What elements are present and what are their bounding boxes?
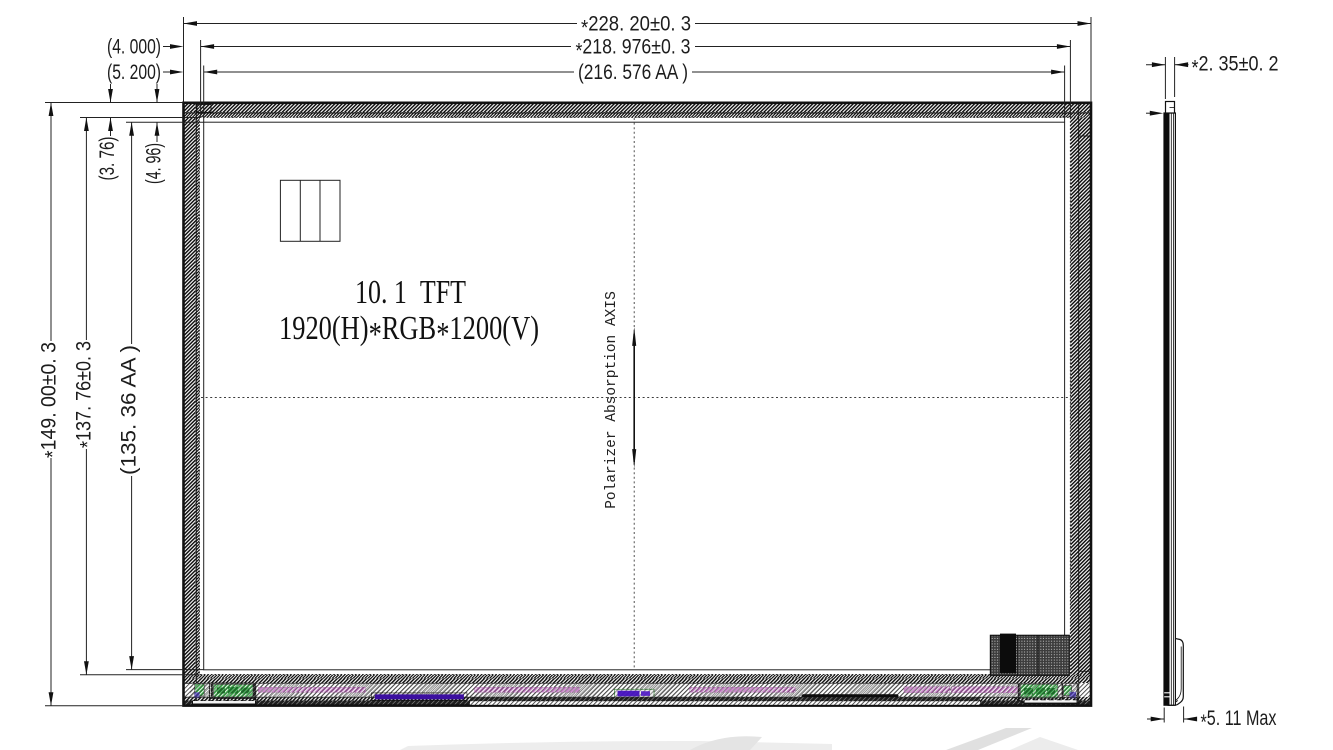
svg-text:(3. 76): (3. 76) [96,137,119,181]
svg-text:*2. 35±0. 2: *2. 35±0. 2 [1192,53,1279,80]
svg-text:(5. 200): (5. 200) [107,61,161,84]
svg-text:(4. 000): (4. 000) [107,36,161,59]
svg-text:*5. 11 Max: *5. 11 Max [1201,707,1277,734]
svg-text:10. 1 TFT: 10. 1 TFT [355,274,466,311]
svg-text:1920(H)*RGB*1200(V): 1920(H)*RGB*1200(V) [279,310,539,353]
svg-text:(4. 96): (4. 96) [143,143,166,184]
svg-text:*137. 76±0. 3: *137. 76±0. 3 [73,341,100,448]
svg-text:*149. 00±0. 3: *149. 00±0. 3 [38,342,65,458]
svg-text:*218. 976±0. 3: *218. 976±0. 3 [576,36,691,63]
svg-text:Polarizer Absorption AXIS: Polarizer Absorption AXIS [604,291,620,509]
svg-text:(216. 576 AA ): (216. 576 AA ) [578,61,688,84]
svg-text:(135. 36 AA ): (135. 36 AA ) [118,345,141,475]
